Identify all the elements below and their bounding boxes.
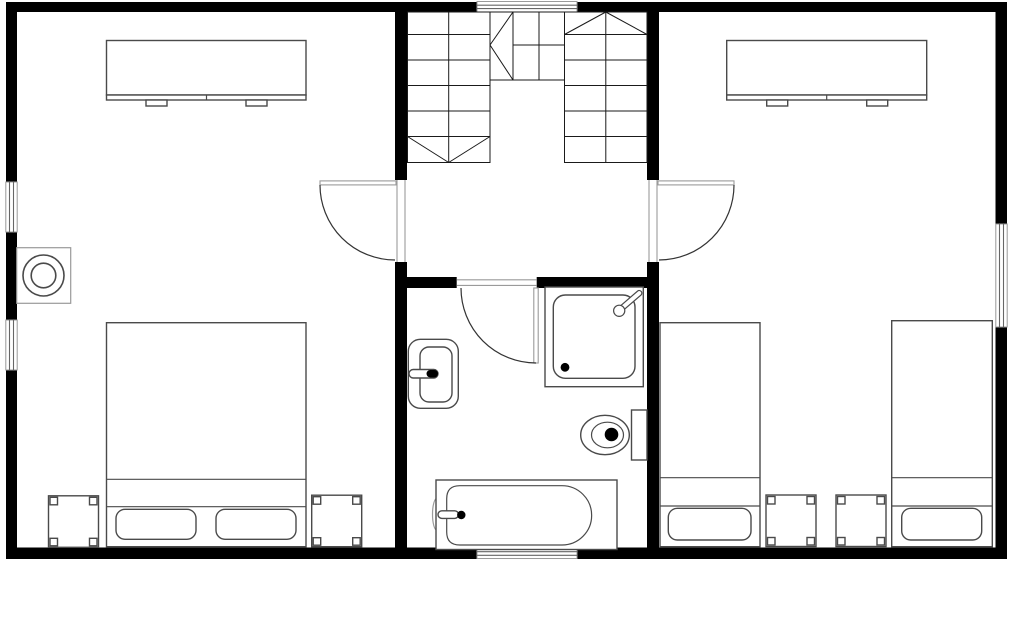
single-bed[interactable] [660,323,760,547]
door-leaf [320,181,396,185]
double-bed[interactable] [107,323,307,547]
round-fixture[interactable] [17,248,71,304]
door-left-bedroom[interactable] [320,180,408,262]
nightstand[interactable] [49,496,99,548]
faucet-head [427,370,439,378]
floor-plan [0,0,1035,629]
tub-faucet [438,511,459,519]
washbasin[interactable] [408,339,458,408]
wardrobe-right[interactable] [727,41,927,107]
shower-head-bulb [614,305,625,316]
pillow [668,508,751,540]
window-top[interactable] [477,2,577,13]
door-leaf [534,288,538,363]
door-right-bedroom[interactable] [646,180,734,262]
staircase[interactable] [408,12,648,163]
window-right[interactable] [996,224,1007,327]
bathtub[interactable] [433,480,618,550]
single-bed[interactable] [892,321,993,547]
pillow [116,509,196,539]
wardrobe-foot [146,100,167,106]
wardrobe-foot [246,100,267,106]
floor-plan-canvas [0,0,1035,629]
pillow [216,509,296,539]
nightstand[interactable] [766,495,816,547]
nightstand[interactable] [312,495,362,547]
flush-dot [605,428,619,442]
window-left-lower[interactable] [6,320,17,370]
wardrobe-left[interactable] [107,41,307,107]
door-bathroom[interactable] [457,276,539,363]
wardrobe-foot [767,100,788,106]
door-leaf [658,181,734,185]
nightstand[interactable] [836,495,886,547]
pillow [902,508,982,540]
window-left-upper[interactable] [6,182,17,232]
wardrobe-foot [867,100,888,106]
shower[interactable] [545,287,643,387]
drain-dot [561,363,570,372]
tub-drain-dot [457,511,465,519]
toilet[interactable] [581,410,647,460]
